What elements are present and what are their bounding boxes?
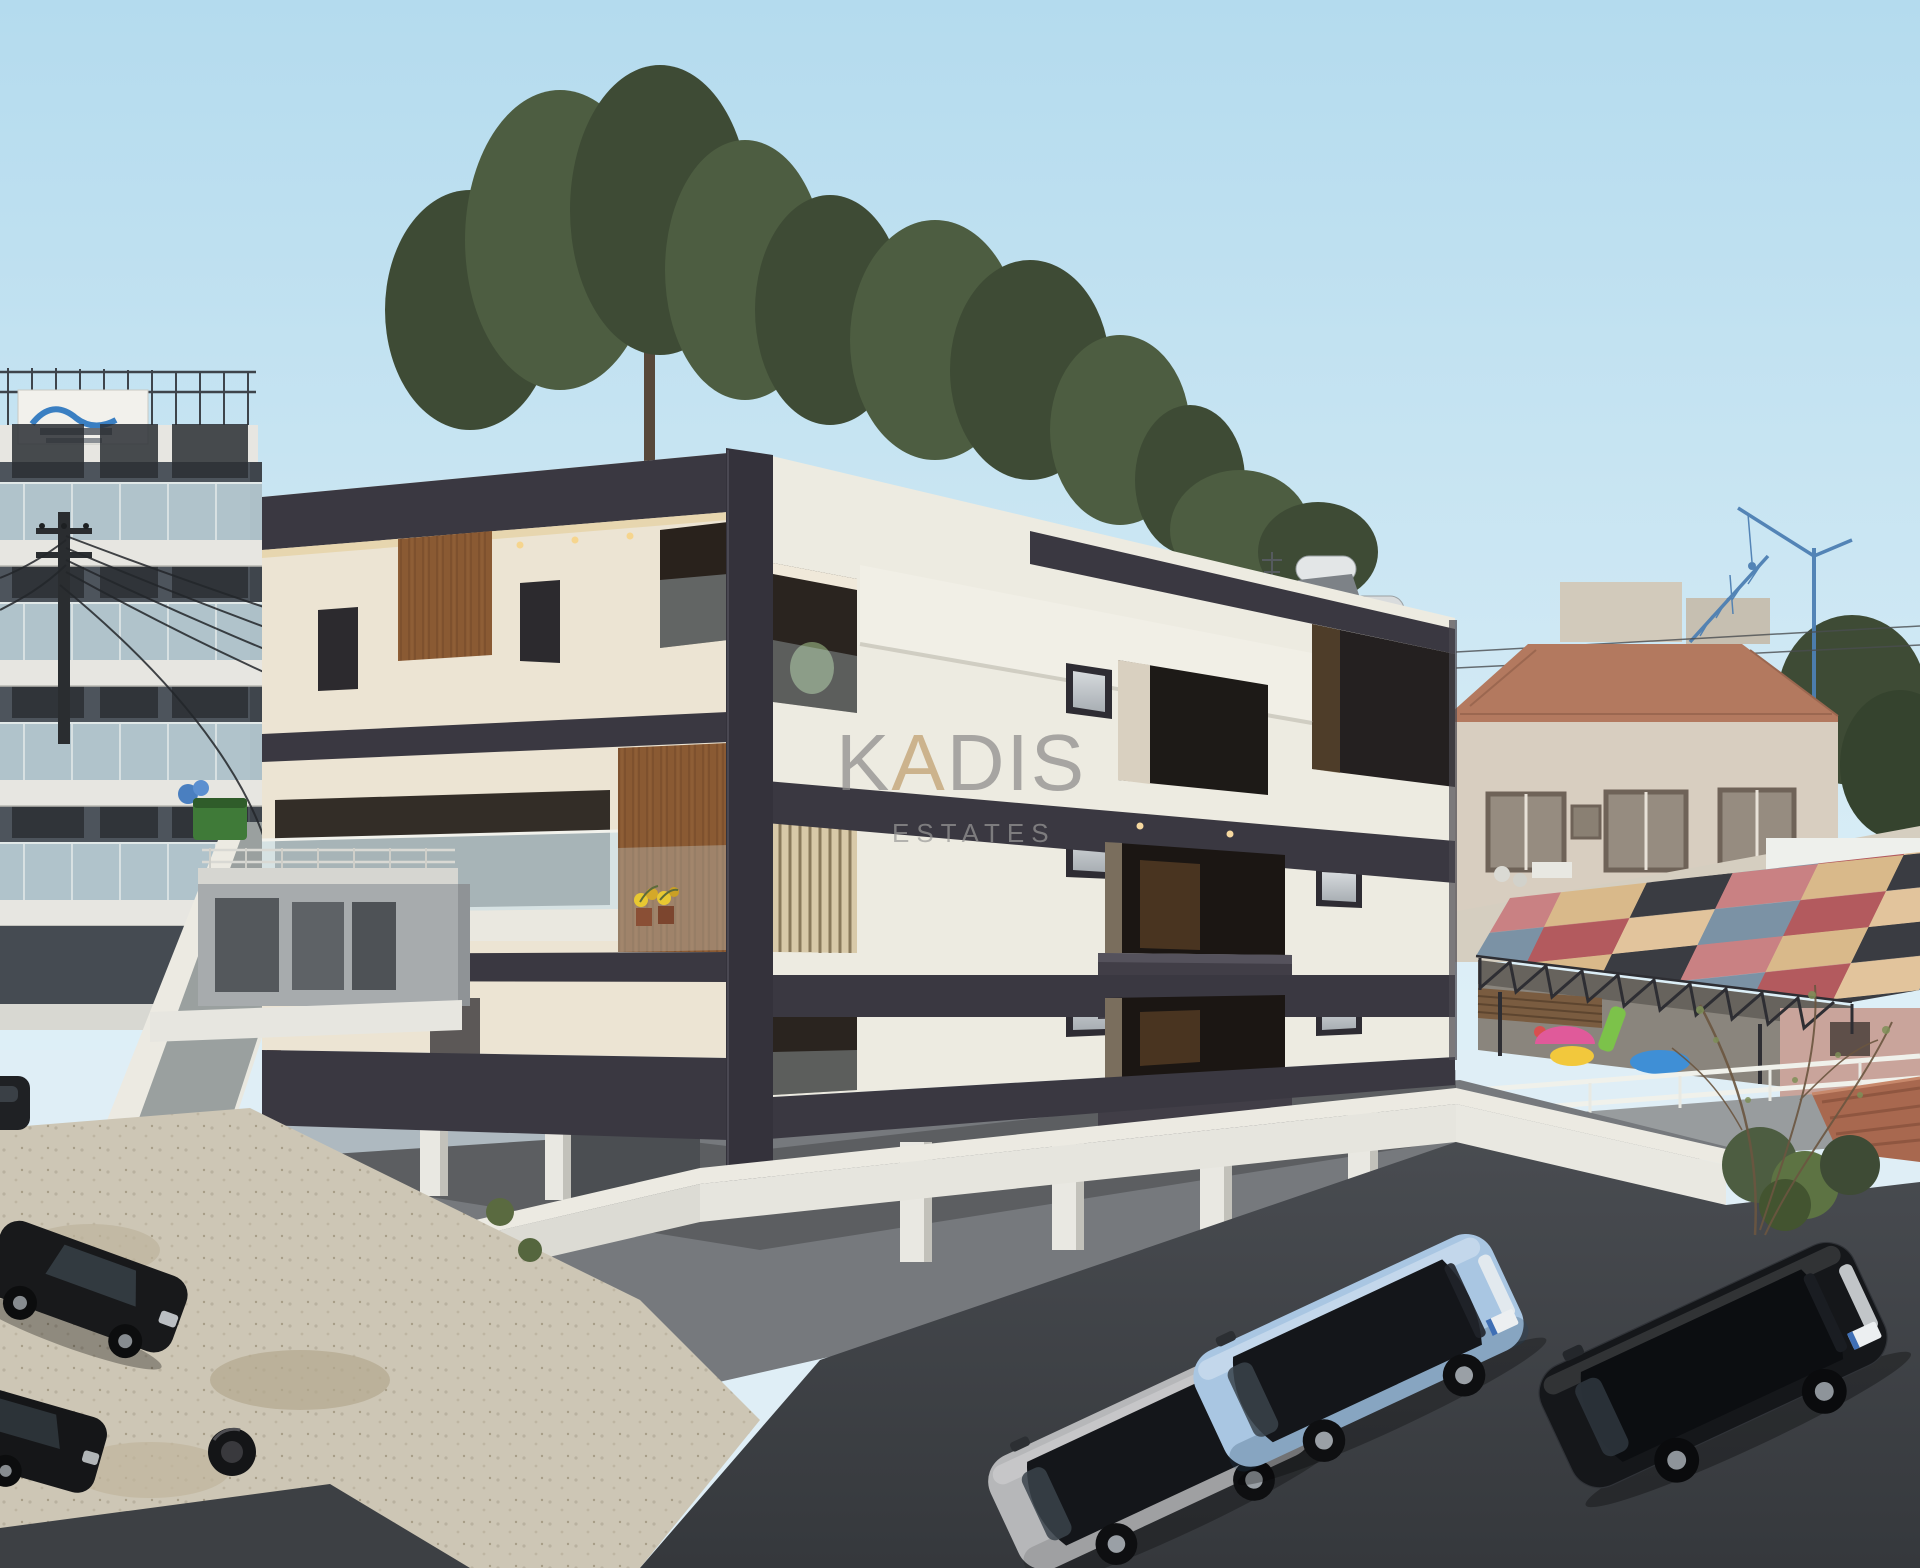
wood-panel-upper bbox=[398, 531, 492, 661]
corner-pillar bbox=[726, 448, 773, 1218]
watermark-letters: DIS bbox=[947, 718, 1086, 807]
architectural-render: KADIS ESTATES bbox=[0, 0, 1920, 1568]
parked-car-sliver bbox=[0, 1076, 30, 1130]
svg-text:KADIS: KADIS bbox=[836, 718, 1086, 807]
left-facade bbox=[262, 453, 728, 1140]
discarded-tire bbox=[208, 1428, 256, 1476]
garage-building bbox=[150, 848, 470, 1042]
watermark-accent-letter: A bbox=[891, 718, 946, 807]
watermark-letter: K bbox=[836, 718, 891, 807]
watermark-subtitle: ESTATES bbox=[892, 818, 1056, 848]
